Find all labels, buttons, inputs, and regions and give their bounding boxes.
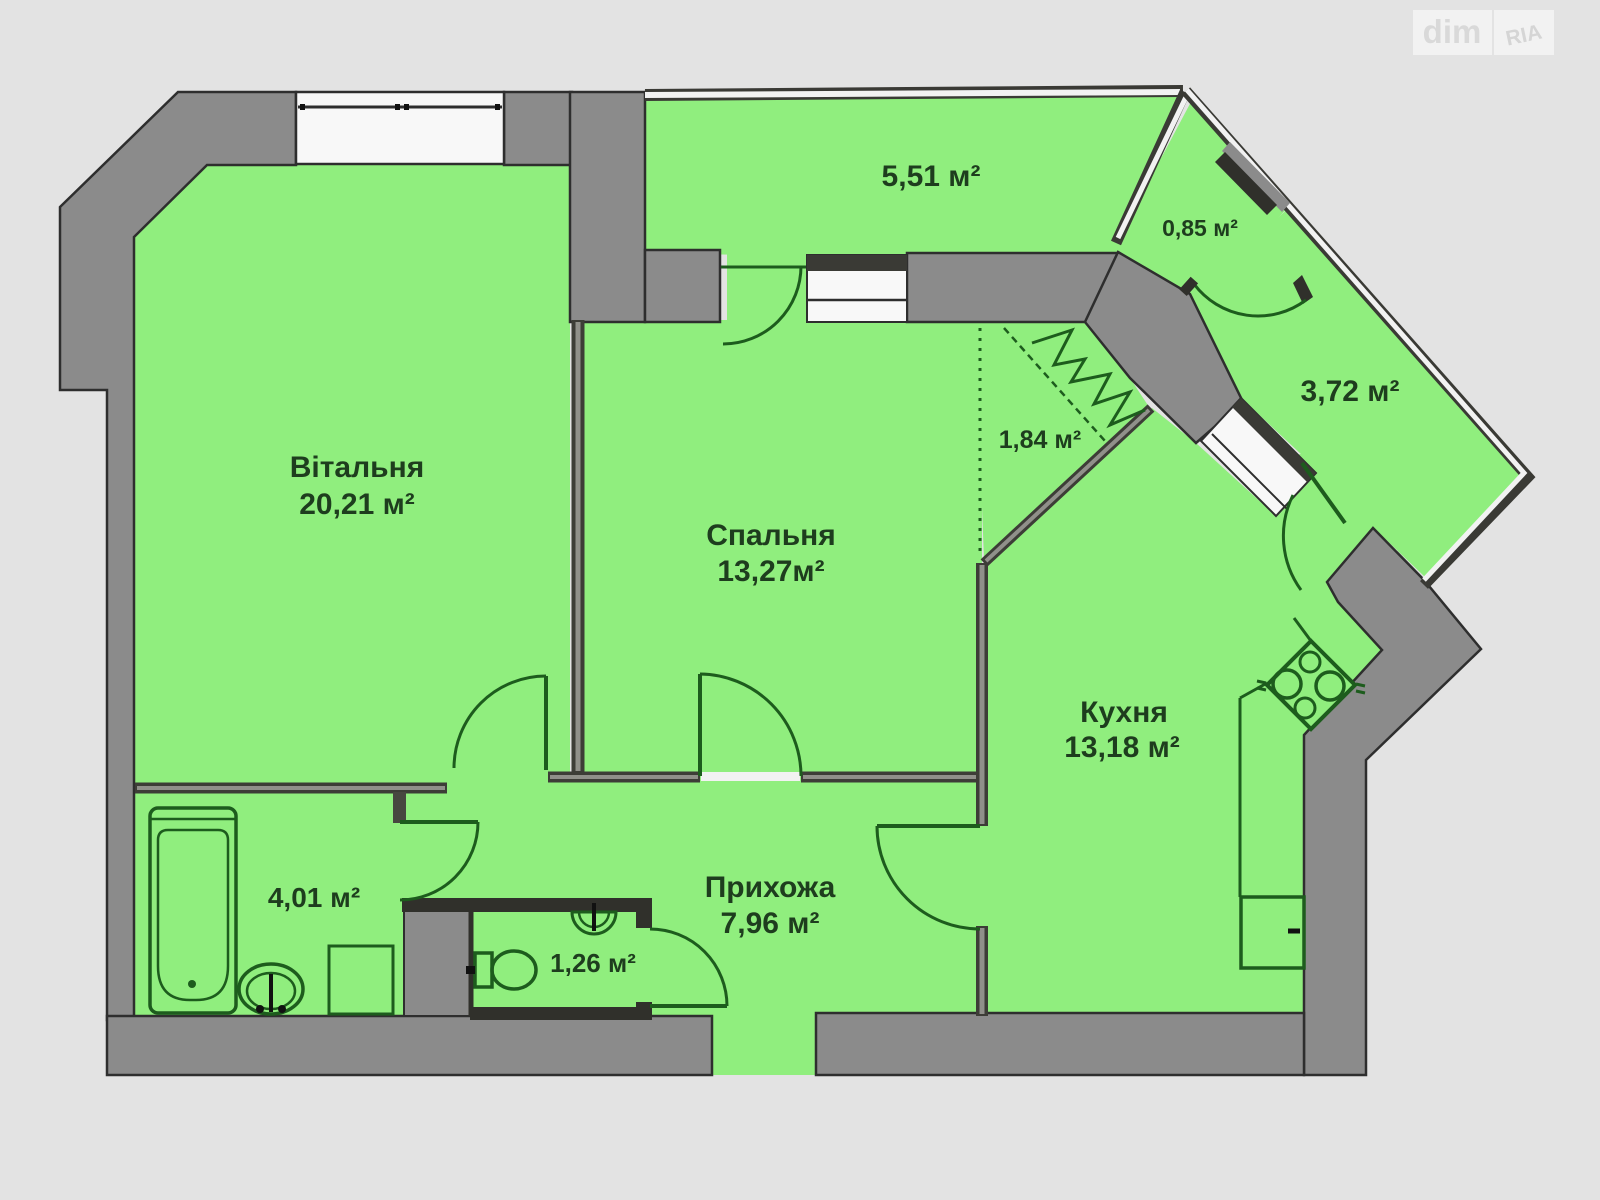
svg-text:dim: dim [1423,13,1482,50]
svg-text:1,26 м²: 1,26 м² [550,948,636,978]
svg-text:Кухня: Кухня [1080,696,1168,729]
svg-text:0,85 м²: 0,85 м² [1162,215,1238,241]
svg-text:Спальня: Спальня [706,519,836,552]
svg-text:4,01 м²: 4,01 м² [268,882,360,913]
svg-text:3,72 м²: 3,72 м² [1301,375,1400,408]
svg-text:Прихожа: Прихожа [705,871,836,904]
svg-text:13,18 м²: 13,18 м² [1064,731,1180,764]
svg-text:1,84 м²: 1,84 м² [999,426,1081,454]
svg-text:20,21 м²: 20,21 м² [299,488,415,521]
svg-text:7,96 м²: 7,96 м² [721,907,820,940]
svg-text:Вітальня: Вітальня [290,451,425,484]
svg-text:5,51 м²: 5,51 м² [882,160,981,193]
svg-text:13,27м²: 13,27м² [717,555,824,588]
